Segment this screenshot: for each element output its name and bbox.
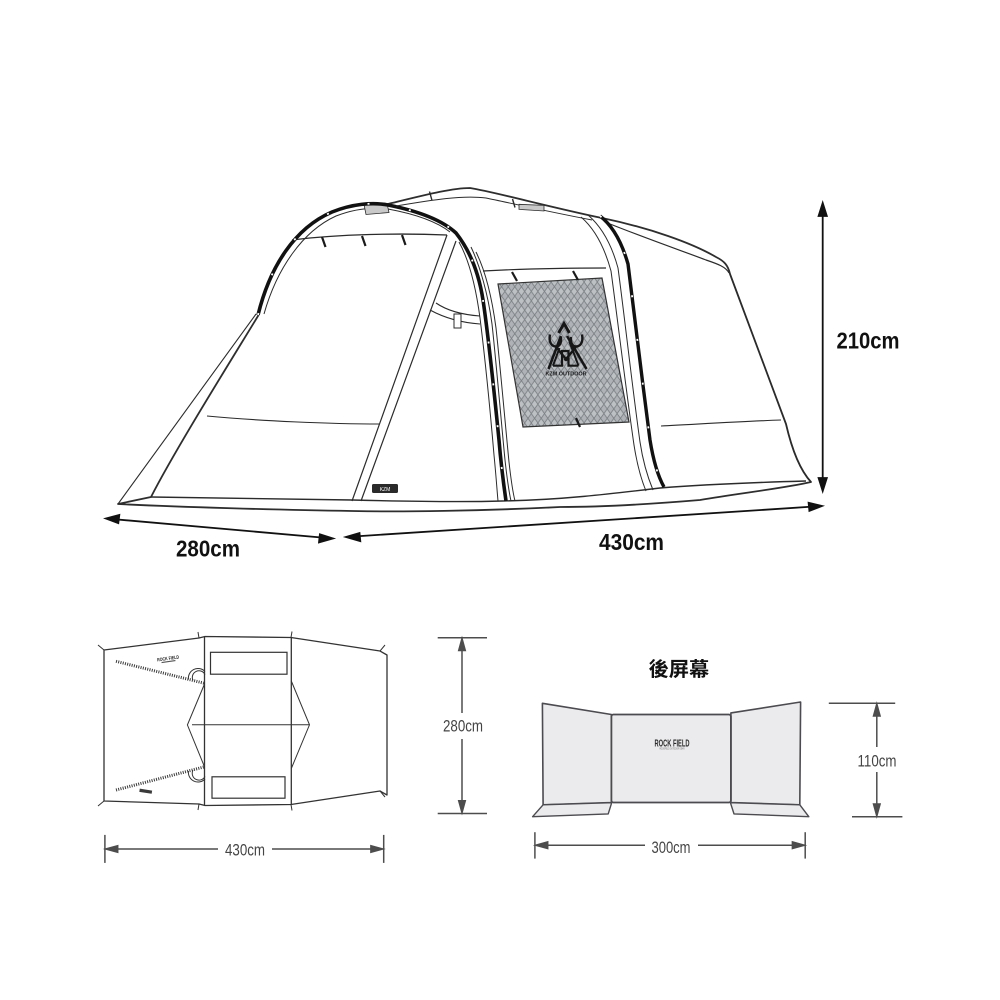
svg-text:KZM: KZM	[380, 487, 391, 493]
svg-text:430cm: 430cm	[225, 842, 265, 860]
svg-text:110cm: 110cm	[858, 752, 897, 770]
svg-text:300cm: 300cm	[652, 839, 691, 857]
svg-text:KZM OUTDOOR: KZM OUTDOOR	[546, 372, 588, 378]
svg-text:ROCKFIELD OUTDOOR GEAR: ROCKFIELD OUTDOOR GEAR	[660, 746, 685, 750]
svg-text:210cm: 210cm	[837, 328, 900, 354]
svg-text:280cm: 280cm	[443, 718, 483, 736]
svg-text:430cm: 430cm	[599, 529, 664, 555]
svg-text:280cm: 280cm	[176, 536, 240, 562]
